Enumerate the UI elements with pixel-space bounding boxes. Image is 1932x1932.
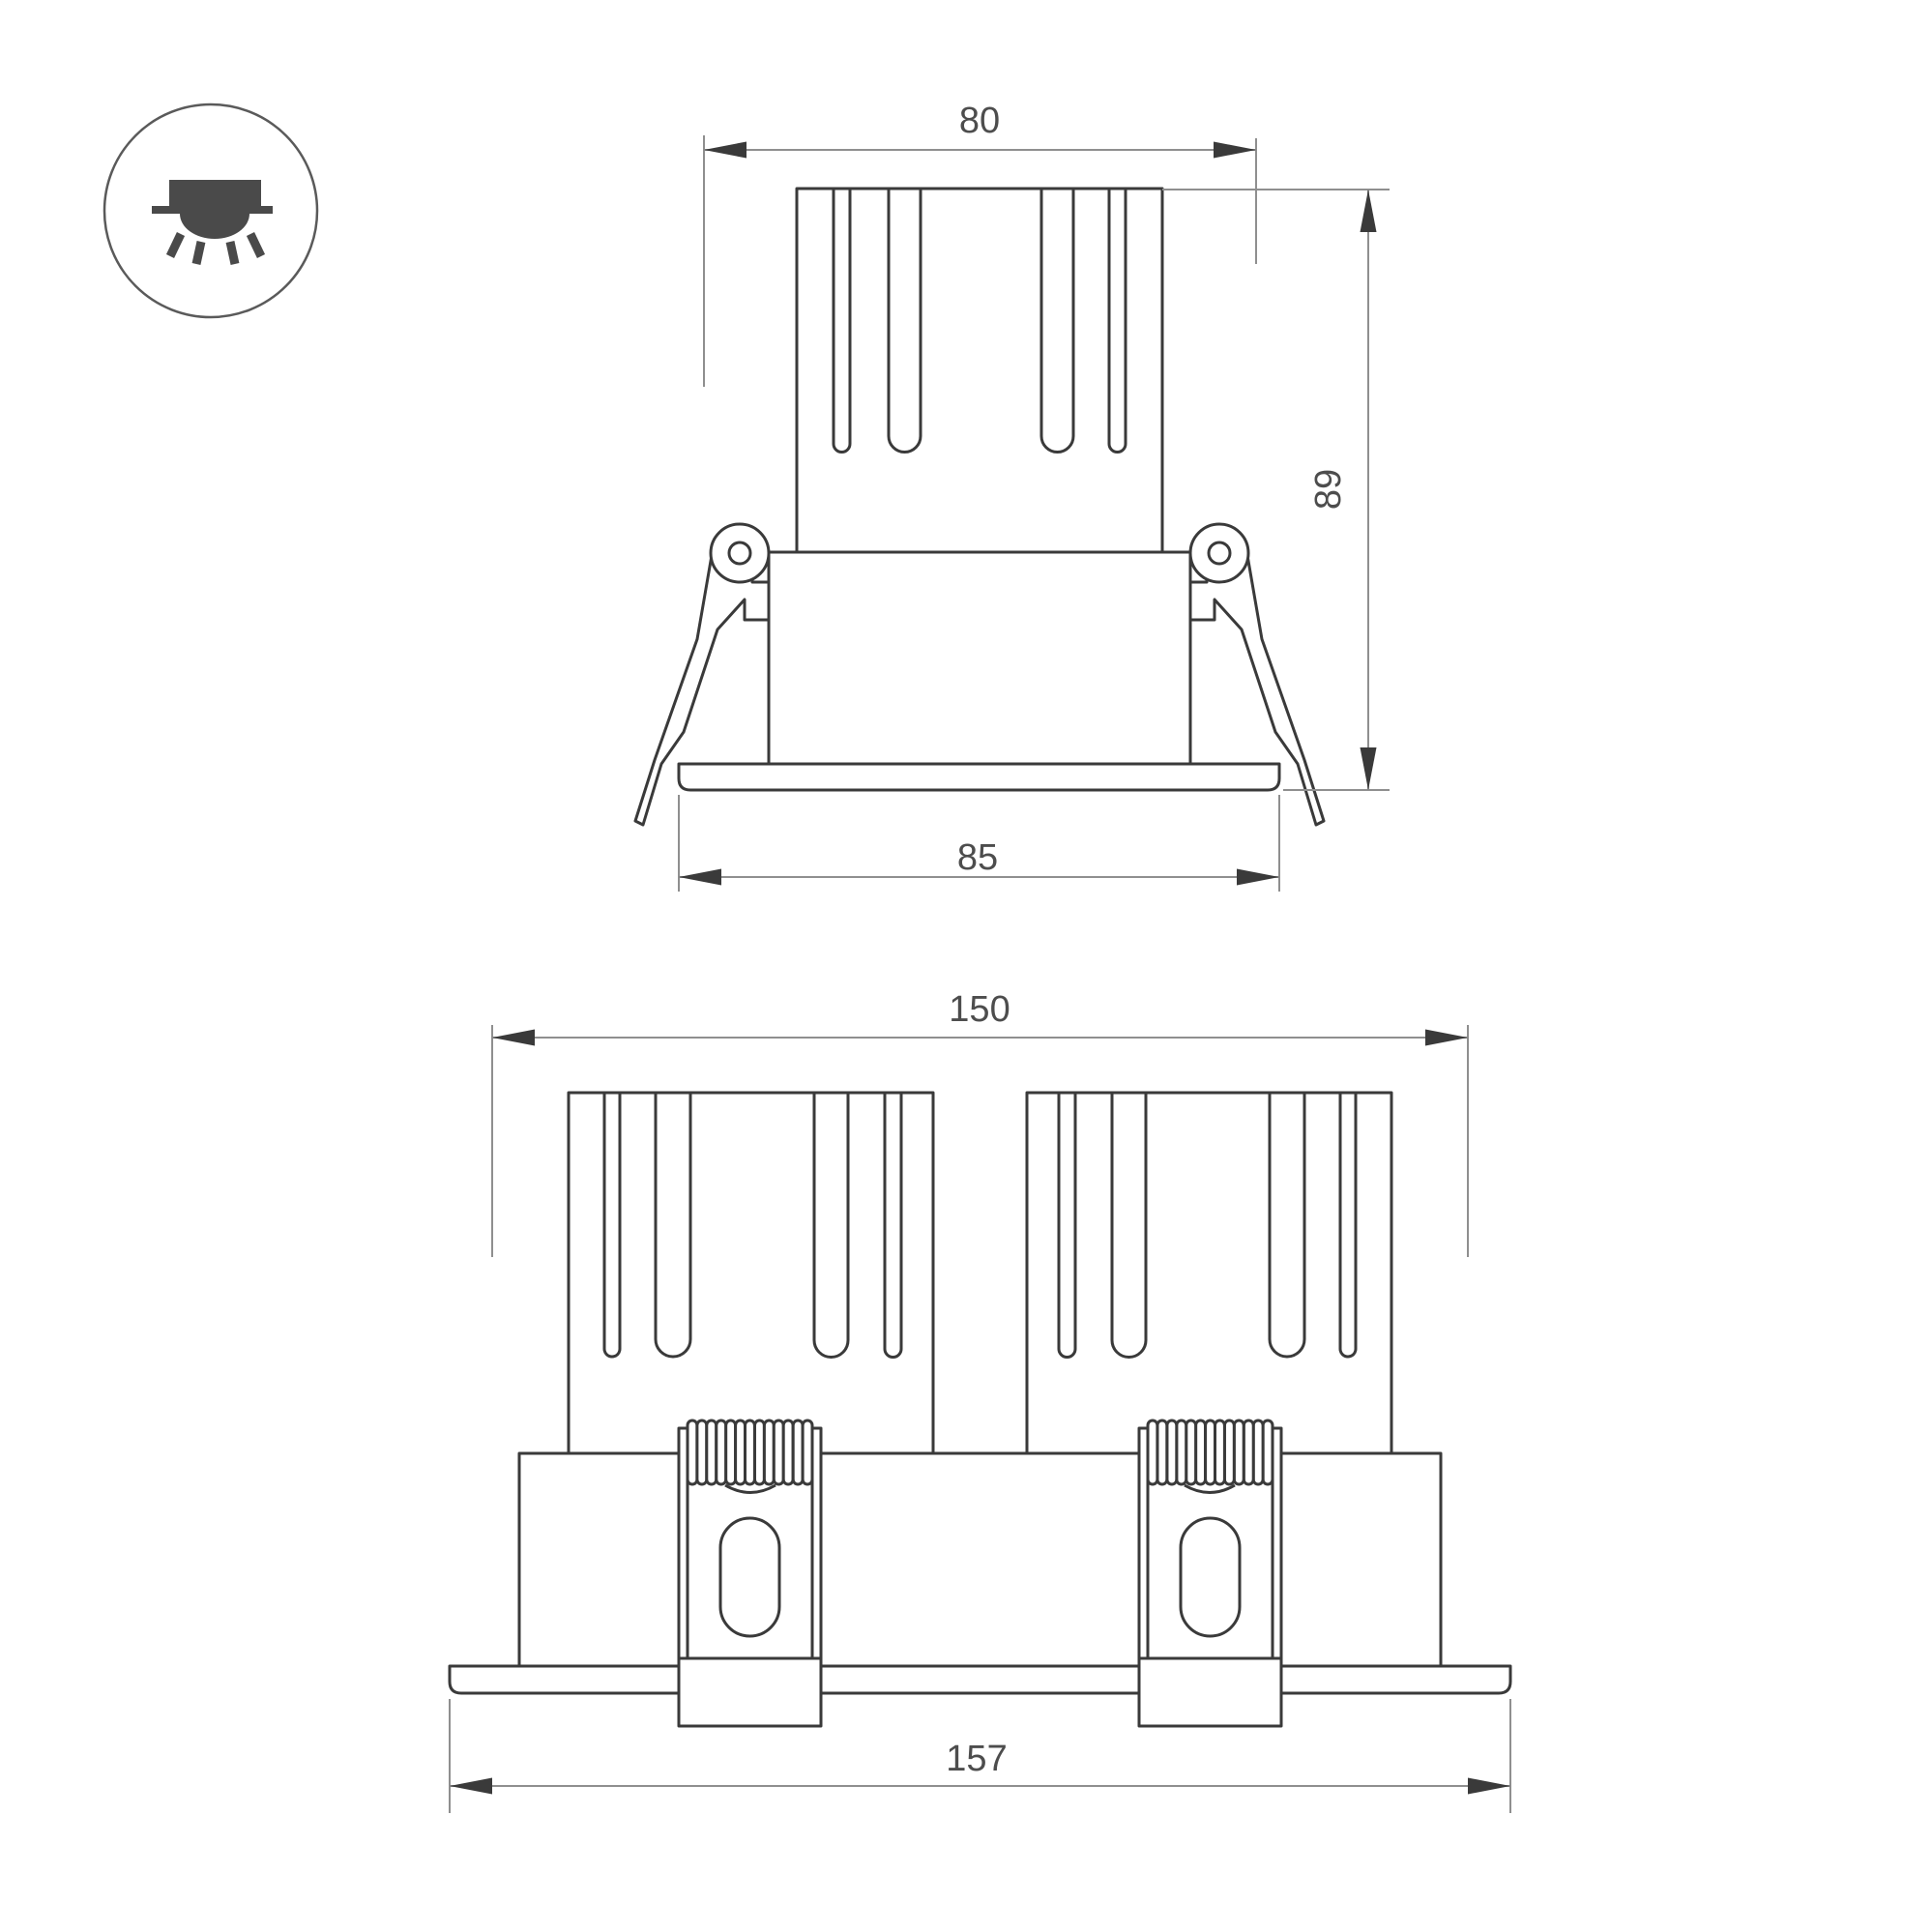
arrowhead-left	[450, 1778, 492, 1795]
technical-drawing: 80 89 85	[0, 0, 1932, 1932]
icon-ceiling-line	[152, 206, 273, 214]
housing-body	[519, 1453, 1441, 1666]
arrowhead-right	[1425, 1030, 1468, 1046]
dimension-label: 80	[959, 101, 1000, 141]
spring-clip-pivot-hole	[729, 542, 750, 564]
spring-coil	[1244, 1420, 1253, 1484]
spring-coil	[783, 1420, 793, 1484]
arrowhead-right	[1214, 142, 1256, 159]
spring-coil	[1148, 1420, 1157, 1484]
heatsink-body	[569, 1093, 933, 1453]
icon-light-dome	[180, 214, 249, 239]
heatsink-module-left	[569, 1093, 933, 1453]
arrowhead-left	[679, 869, 721, 886]
spring-coil	[707, 1420, 717, 1484]
spring-coil	[1167, 1420, 1177, 1484]
arrowhead-bottom	[1361, 747, 1377, 790]
dimension-label: 150	[949, 989, 1010, 1030]
recessed-downlight-icon	[104, 104, 317, 317]
arrowhead-left	[704, 142, 746, 159]
dimension-flange-width: 85	[679, 795, 1279, 892]
clamp-assembly-right	[1139, 1420, 1281, 1726]
housing-body	[769, 552, 1190, 764]
dimension-label: 157	[946, 1739, 1007, 1779]
double-module-front-view: 150 157	[450, 989, 1510, 1813]
spring-clip-pivot-hole	[1209, 542, 1230, 564]
clamp-assembly-left	[679, 1420, 821, 1726]
heatsink-body	[1027, 1093, 1391, 1453]
spring-coil	[803, 1420, 812, 1484]
arrowhead-top	[1361, 190, 1377, 232]
dimension-label: 85	[957, 837, 998, 878]
single-module-front-view: 80 89 85	[635, 101, 1390, 892]
spring-coil	[746, 1420, 755, 1484]
icon-fixture-body	[169, 180, 261, 210]
coil-spring	[1148, 1420, 1273, 1484]
clamp-foot	[679, 1658, 821, 1726]
arrowhead-right	[1468, 1778, 1510, 1795]
heatsink-module-right	[1027, 1093, 1391, 1453]
heatsink-body	[797, 189, 1162, 552]
dimension-flange-width: 157	[450, 1699, 1510, 1813]
dimension-label: 89	[1308, 469, 1349, 510]
clamp-foot	[1139, 1658, 1281, 1726]
arrowhead-right	[1237, 869, 1279, 886]
trim-flange	[679, 764, 1279, 790]
coil-spring	[688, 1420, 812, 1484]
trim-flange	[450, 1666, 1510, 1693]
arrowhead-left	[492, 1030, 535, 1046]
spring-coil	[1206, 1420, 1215, 1484]
